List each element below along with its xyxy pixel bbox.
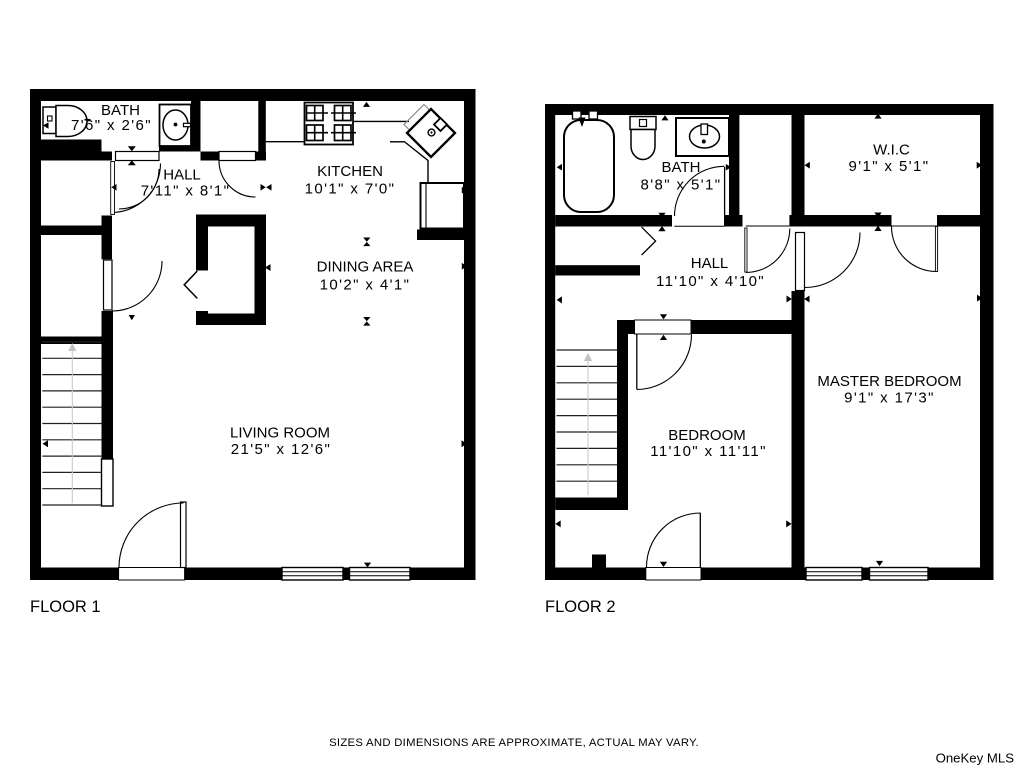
svg-text:MASTER BEDROOM: MASTER BEDROOM [817, 373, 961, 390]
svg-text:10'1" x 7'0": 10'1" x 7'0" [305, 181, 396, 198]
svg-text:OneKey MLS: OneKey MLS [936, 751, 1015, 766]
svg-text:HALL: HALL [691, 255, 729, 272]
svg-text:21'5" x 12'6": 21'5" x 12'6" [231, 441, 331, 458]
svg-text:10'2" x 4'1": 10'2" x 4'1" [320, 277, 411, 294]
svg-text:9'1" x 5'1": 9'1" x 5'1" [849, 158, 930, 175]
svg-text:11'10" x 4'10": 11'10" x 4'10" [656, 273, 765, 290]
svg-text:11'10" x 11'11": 11'10" x 11'11" [650, 443, 767, 460]
svg-text:BATH: BATH [662, 159, 701, 176]
svg-text:BEDROOM: BEDROOM [668, 427, 746, 444]
svg-text:KITCHEN: KITCHEN [317, 163, 383, 180]
svg-text:W.I.C: W.I.C [873, 142, 910, 159]
svg-text:LIVING ROOM: LIVING ROOM [230, 425, 330, 442]
svg-text:9'1" x 17'3": 9'1" x 17'3" [844, 390, 935, 407]
svg-text:FLOOR 1: FLOOR 1 [30, 598, 101, 616]
svg-text:FLOOR 2: FLOOR 2 [545, 598, 616, 616]
svg-text:SIZES AND DIMENSIONS ARE APPRO: SIZES AND DIMENSIONS ARE APPROXIMATE, AC… [329, 737, 699, 749]
svg-text:HALL: HALL [163, 167, 201, 184]
svg-text:8'8" x 5'1": 8'8" x 5'1" [641, 177, 722, 194]
svg-text:DINING AREA: DINING AREA [317, 259, 414, 276]
svg-text:7'11" x 8'1": 7'11" x 8'1" [141, 183, 231, 200]
svg-text:7'6" x 2'6": 7'6" x 2'6" [71, 117, 152, 134]
